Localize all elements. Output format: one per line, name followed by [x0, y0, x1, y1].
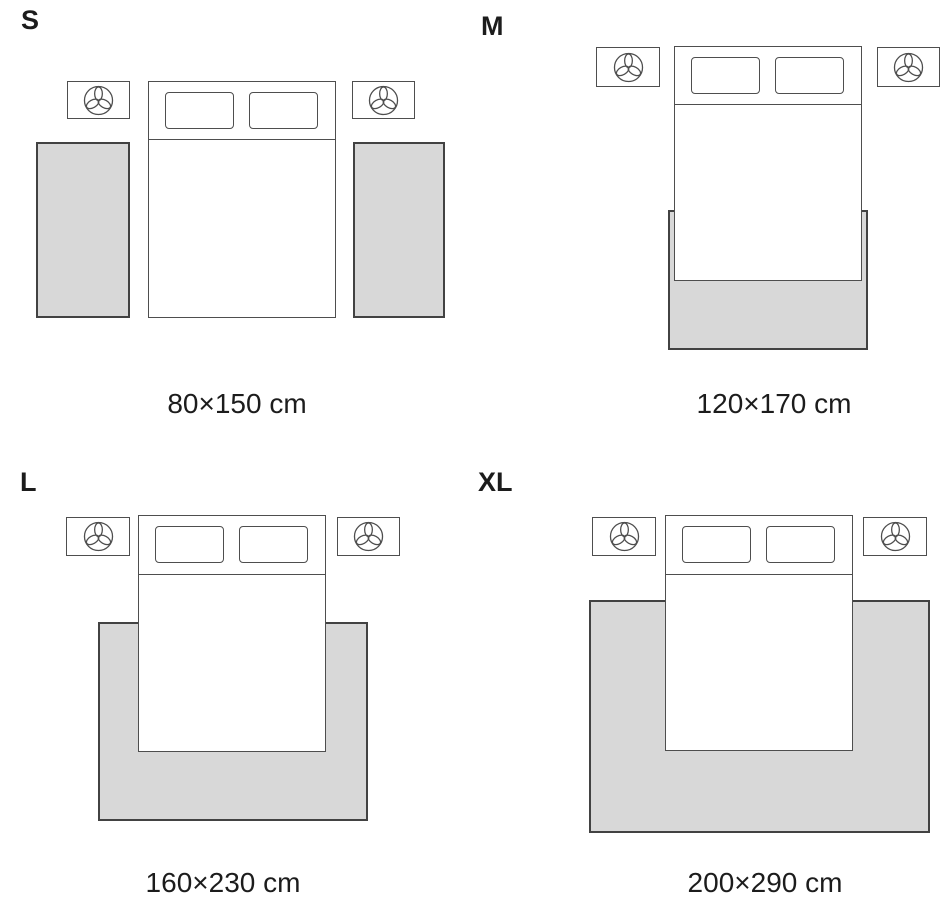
bed: [674, 46, 862, 281]
bed-headboard: [675, 47, 861, 105]
bed: [138, 515, 326, 752]
lamp-icon: [352, 520, 385, 553]
bed-headboard: [139, 516, 325, 575]
pillow-right: [775, 57, 844, 94]
bed-headboard: [149, 82, 335, 140]
lamp-icon: [82, 520, 115, 553]
rug-left-runner: [36, 142, 130, 318]
nightstand-right: [863, 517, 927, 556]
lamp-icon: [608, 520, 641, 553]
size-letter: M: [481, 12, 504, 42]
bed: [665, 515, 853, 751]
nightstand-left: [66, 517, 130, 556]
lamp-icon: [612, 51, 645, 84]
lamp-icon: [879, 520, 912, 553]
lamp-icon: [892, 51, 925, 84]
lamp-icon: [367, 84, 400, 117]
size-letter: L: [20, 468, 37, 498]
rug-right-runner: [353, 142, 445, 318]
nightstand-right: [352, 81, 415, 119]
bed: [148, 81, 336, 318]
size-letter: XL: [478, 468, 513, 498]
pillow-right: [239, 526, 308, 563]
pillow-right: [249, 92, 318, 129]
dimensions-caption: 120×170 cm: [697, 387, 852, 421]
dimensions-caption: 80×150 cm: [167, 387, 306, 421]
nightstand-left: [596, 47, 660, 87]
nightstand-left: [67, 81, 130, 119]
nightstand-left: [592, 517, 656, 556]
dimensions-caption: 160×230 cm: [146, 866, 301, 900]
dimensions-caption: 200×290 cm: [688, 866, 843, 900]
pillow-left: [682, 526, 751, 563]
size-letter: S: [21, 6, 39, 36]
pillow-right: [766, 526, 835, 563]
bed-headboard: [666, 516, 852, 575]
pillow-left: [691, 57, 760, 94]
rug-size-guide: S 80×150 cm: [0, 0, 950, 900]
pillow-left: [165, 92, 234, 129]
lamp-icon: [82, 84, 115, 117]
nightstand-right: [877, 47, 940, 87]
nightstand-right: [337, 517, 400, 556]
pillow-left: [155, 526, 224, 563]
